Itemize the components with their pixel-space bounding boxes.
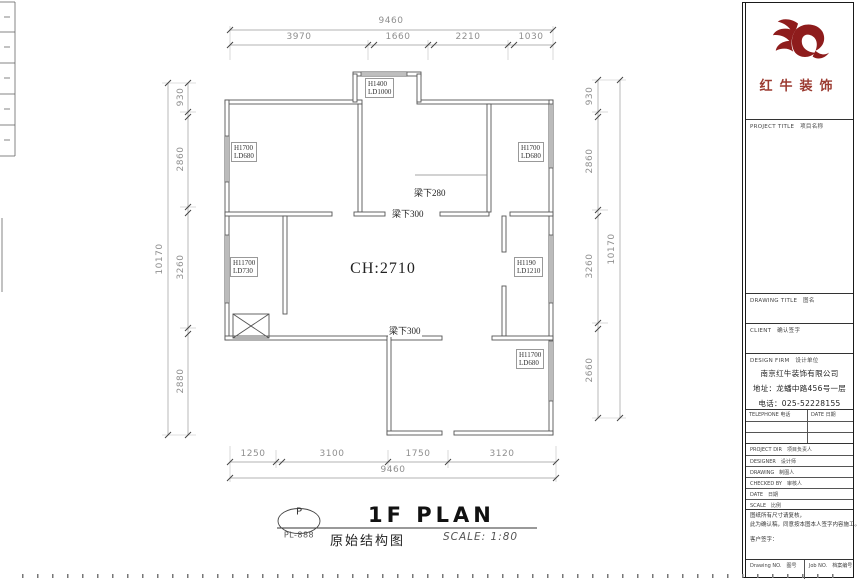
dim-right-seg-4: 2660 [585,358,595,383]
window-label-right-bottom: H11700 LD680 [516,349,544,369]
section-design-firm: DESIGN FIRM 设计单位 南京红牛装饰有限公司 地址：龙蟠中路456号一… [746,353,853,409]
section-head: DRAWING TITLE 图名 [746,294,853,304]
dim-top-seg-1: 3970 [287,32,312,42]
dim-left-seg-1: 930 [176,88,186,107]
plan-title: 1F PLAN [368,503,495,527]
beam-label-300b: 梁下300 [388,324,422,337]
shaft-hatch [233,314,269,338]
dim-bottom-seg-1: 1250 [241,449,266,459]
company-address: 地址：龙蟠中路456号一层 [746,383,853,394]
detail-bubble-code: PL-888 [284,531,314,540]
dim-bottom-total: 9460 [381,465,406,475]
contact-empty-cell [746,432,808,443]
section-head: CLIENT 确认签字 [746,324,853,334]
contact-empty-cell [808,421,853,432]
dim-right-seg-3: 3260 [585,254,595,279]
window-label-line: H1700 [234,144,253,152]
window-label-line: LD680 [519,359,539,367]
contact-header-right: DATE 日期 [808,410,853,421]
section-head: PROJECT TITLE 项目名称 [746,120,853,130]
note-line-1: 图纸所有尺寸请复核， [746,510,853,519]
sheet-edge-artifacts [0,2,15,292]
red-bull-logo-icon [769,17,831,65]
window-label-left-top: H1700 LD680 [231,142,257,162]
plan-scale-label: SCALE: 1:80 [443,531,518,543]
dim-right-seg-2: 2860 [585,149,595,174]
window-label-left-mid: H11700 LD730 [230,257,258,277]
note-line-2: 此为确认稿，同意按本图本人签字内容施工。 [746,519,853,528]
detail-bubble-letter: P [296,507,302,518]
section-drawing-title: DRAWING TITLE 图名 [746,293,853,323]
section-client-sign: CLIENT 确认签字 [746,323,853,353]
section-head: DESIGN FIRM 设计单位 [746,354,853,364]
drawing-sheet: 9460 3970 1660 2210 1030 10170 930 2860 … [0,0,860,580]
window-label-line: LD680 [234,152,254,160]
dim-bottom-seg-2: 3100 [320,449,345,459]
beam-label-300a: 梁下300 [391,207,425,220]
window-label-line: LD1210 [517,267,540,275]
row-date: DATE 日期 [746,488,853,499]
window-label-line: H1190 [517,259,536,267]
window-label-right-mid: H1190 LD1210 [514,257,543,277]
dim-top-total: 9460 [379,16,404,26]
brand-logo-area: 红牛装饰 [746,3,853,119]
company-name: 南京红牛装饰有限公司 [746,368,853,379]
window-label-right-top: H1700 LD680 [518,142,544,162]
ceiling-height-label: CH:2710 [350,260,416,278]
window-label-line: H1400 [368,80,387,88]
window-label-line: H11700 [519,351,541,359]
contact-empty-cell [746,421,808,432]
row-designer: DESIGNER 设计师 [746,455,853,466]
client-signature-label: 客户签字： [746,534,853,543]
company-phone: 电话：025-52228155 [746,398,853,409]
drawing-name-label: 原始结构图 [330,530,405,549]
dim-top-seg-4: 1030 [519,32,544,42]
dim-bottom-seg-4: 3120 [490,449,515,459]
brand-name: 红牛装饰 [746,75,853,94]
walls [225,72,553,435]
window-label-top-bay: H1400 LD1000 [365,78,394,98]
dim-left-total: 10170 [155,243,165,274]
dim-right-total: 10170 [607,233,617,264]
dim-bottom-seg-3: 1750 [406,449,431,459]
dim-top-seg-3: 2210 [456,32,481,42]
sheet-edge-ruler [22,574,834,578]
dim-right-seg-1: 930 [585,87,595,106]
dim-left-seg-2: 2860 [176,147,186,172]
contact-empty-cell [808,432,853,443]
dim-top-seg-2: 1660 [386,32,411,42]
row-checked-by: CHECKED BY 审核人 [746,477,853,488]
dim-left-seg-3: 3260 [176,255,186,280]
row-project-dir: PROJECT DIR 项目负责人 [746,444,853,455]
dim-left-seg-4: 2880 [176,369,186,394]
contact-table: TELEPHONE 电话 DATE 日期 [746,409,853,443]
window-label-line: LD730 [233,267,253,275]
section-project-title: PROJECT TITLE 项目名称 [746,119,853,293]
beam-label-280: 梁下280 [413,186,447,199]
signature-rows: PROJECT DIR 项目负责人 DESIGNER 设计师 DRAWING 制… [746,443,853,509]
title-block: 红牛装饰 PROJECT TITLE 项目名称 DRAWING TITLE 图名… [742,2,854,578]
window-label-line: LD680 [521,152,541,160]
row-drawing: DRAWING 制图人 [746,466,853,477]
contact-header-left: TELEPHONE 电话 [746,410,808,421]
window-label-line: LD1000 [368,88,391,96]
window-label-line: H11700 [233,259,255,267]
note-section: 图纸所有尺寸请复核， 此为确认稿，同意按本图本人签字内容施工。 客户签字： [746,509,853,559]
window-label-line: H1700 [521,144,540,152]
